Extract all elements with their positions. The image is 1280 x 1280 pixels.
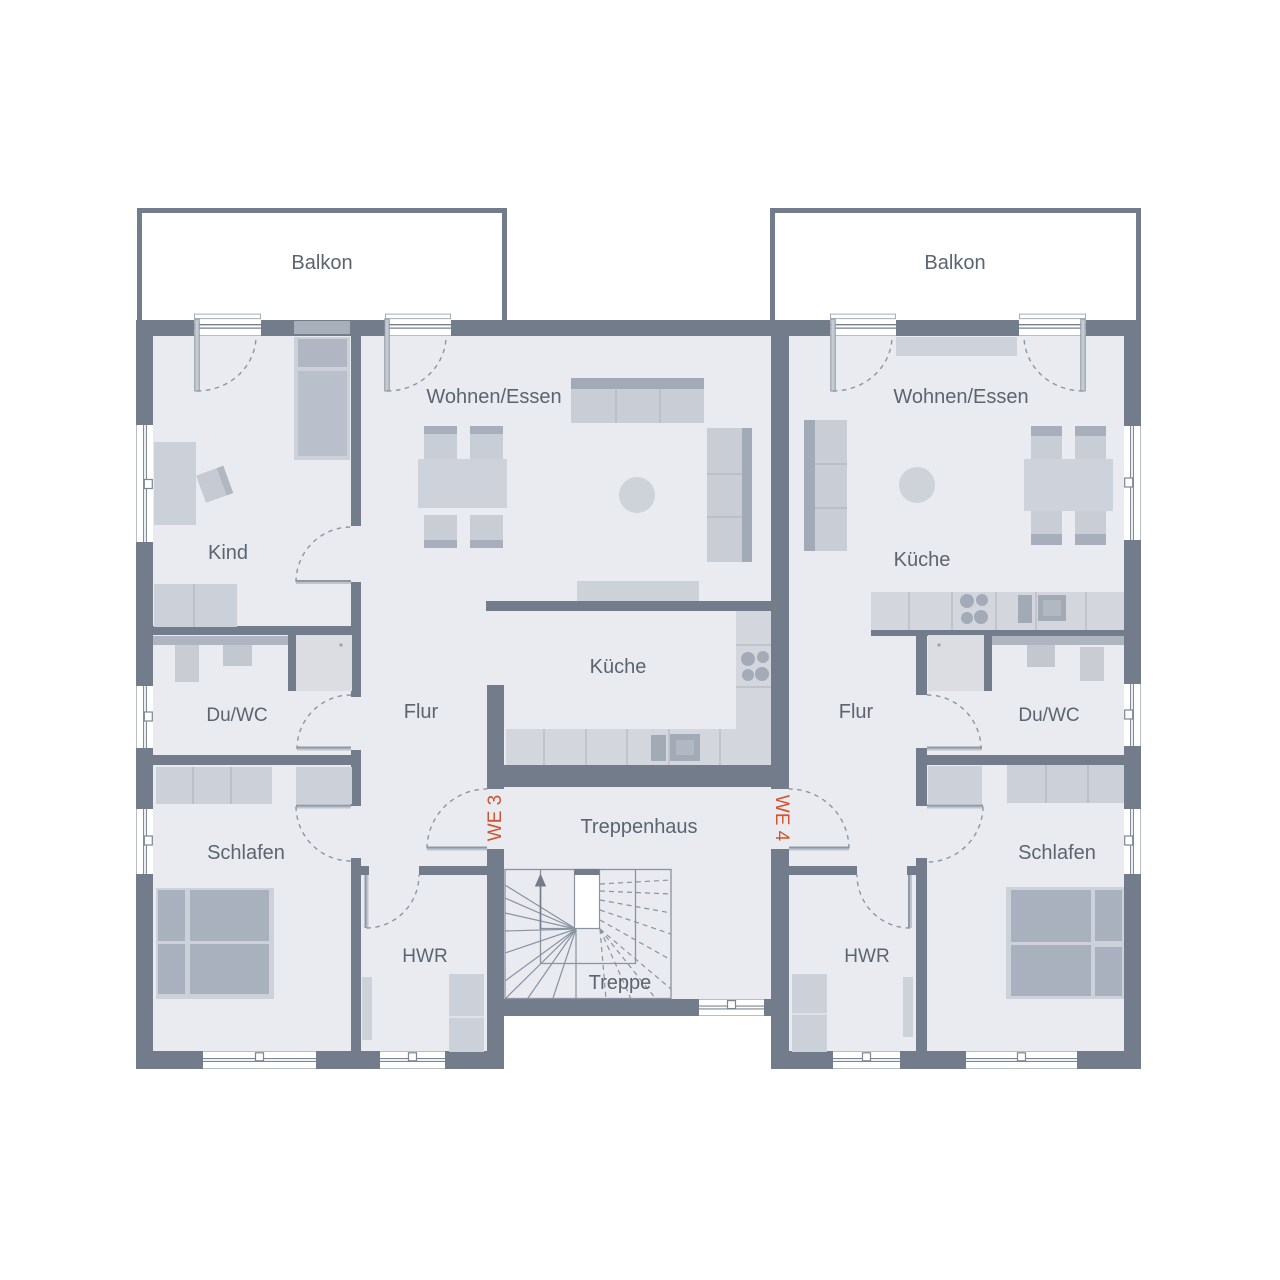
svg-text:Treppe: Treppe — [589, 972, 652, 994]
svg-text:WE 3: WE 3 — [485, 795, 506, 841]
svg-text:Kind: Kind — [208, 542, 248, 564]
svg-text:Treppenhaus: Treppenhaus — [580, 816, 697, 838]
svg-text:Küche: Küche — [590, 656, 647, 678]
svg-text:Flur: Flur — [839, 701, 874, 723]
svg-text:Balkon: Balkon — [291, 252, 352, 274]
svg-text:Flur: Flur — [404, 701, 439, 723]
svg-text:Du/WC: Du/WC — [1018, 705, 1079, 726]
svg-text:Schlafen: Schlafen — [1018, 842, 1096, 864]
svg-text:Wohnen/Essen: Wohnen/Essen — [893, 386, 1028, 408]
svg-text:Du/WC: Du/WC — [206, 705, 267, 726]
svg-text:Schlafen: Schlafen — [207, 842, 285, 864]
svg-text:Wohnen/Essen: Wohnen/Essen — [426, 386, 561, 408]
svg-text:HWR: HWR — [402, 946, 447, 967]
svg-text:Balkon: Balkon — [924, 252, 985, 274]
svg-text:HWR: HWR — [844, 946, 889, 967]
svg-text:Küche: Küche — [894, 549, 951, 571]
svg-text:WE 4: WE 4 — [771, 795, 792, 842]
